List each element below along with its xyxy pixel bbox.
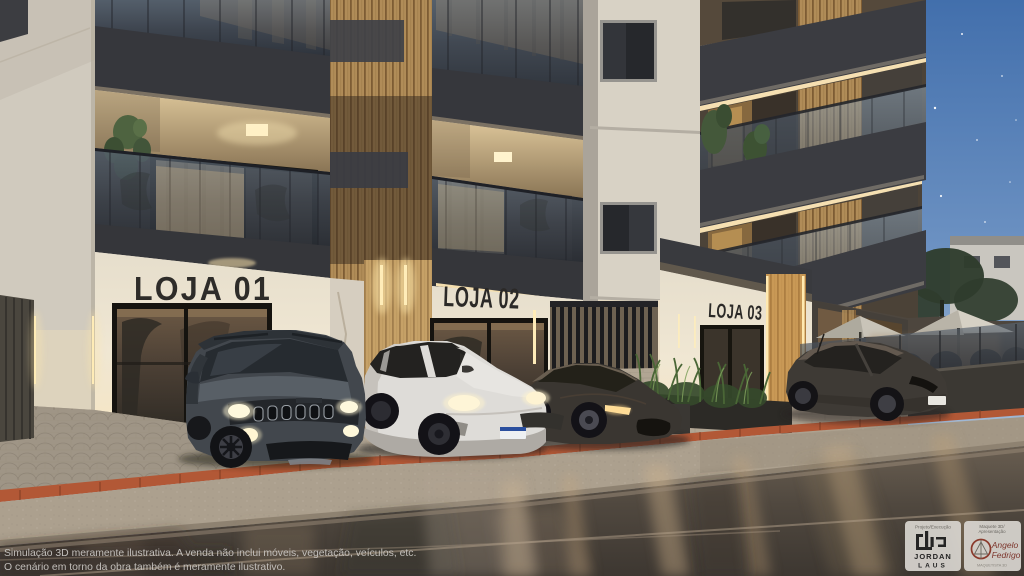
- svg-text:Apresentação: Apresentação: [978, 529, 1006, 534]
- svg-text:Fedrigo: Fedrigo: [992, 550, 1021, 560]
- svg-text:LOJA 02: LOJA 02: [443, 281, 521, 316]
- svg-text:Angelo: Angelo: [991, 540, 1019, 550]
- svg-text:MAQUETISTA 3D: MAQUETISTA 3D: [977, 564, 1007, 568]
- svg-text:LAUS: LAUS: [918, 563, 948, 570]
- svg-text:LOJA 01: LOJA 01: [134, 270, 272, 307]
- svg-text:JORDAN: JORDAN: [914, 552, 952, 561]
- svg-text:LOJA 03: LOJA 03: [708, 299, 763, 325]
- svg-text:Projeto/Execução: Projeto/Execução: [915, 525, 951, 530]
- svg-text:Simulação 3D meramente ilustra: Simulação 3D meramente ilustrativa. A ve…: [4, 548, 416, 559]
- svg-text:O cenário em torno da obra tam: O cenário em torno da obra também é mera…: [4, 562, 285, 573]
